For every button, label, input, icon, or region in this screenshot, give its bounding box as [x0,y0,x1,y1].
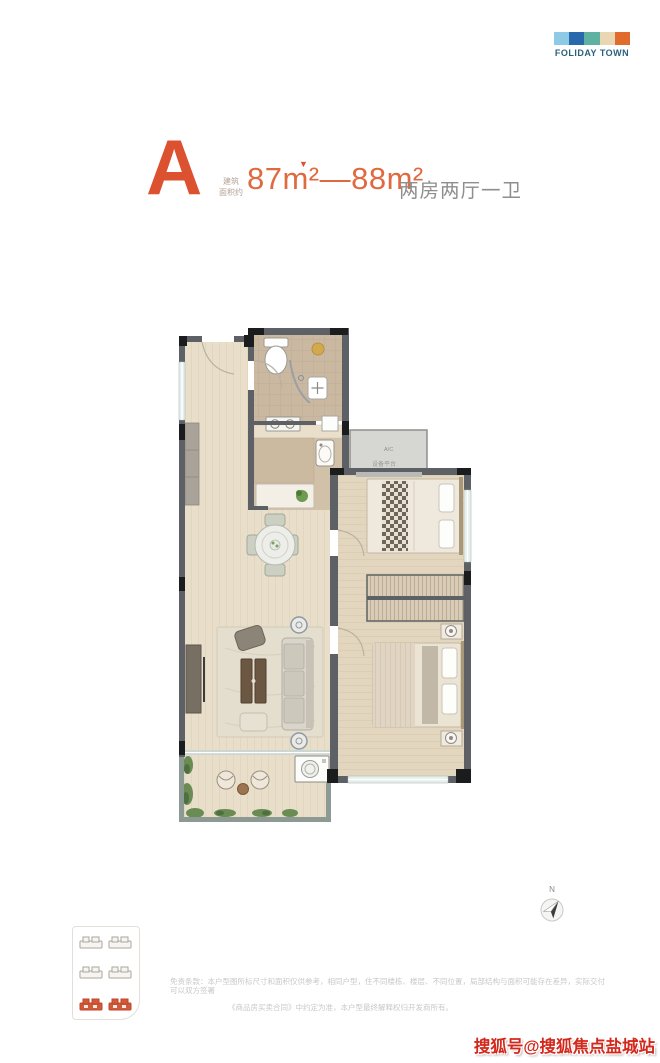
logo-text: FOLIDAY TOWN [552,48,632,58]
logo-color-block [569,32,584,45]
fridge-icon [322,416,338,431]
north-indicator: N [536,882,568,933]
toilet-icon [265,346,287,374]
pillow [439,484,454,512]
pillow [439,520,454,548]
unit-type-letter: A [146,128,202,206]
bed2-headboard [459,477,463,555]
logo-color-block [584,32,599,45]
balcony-table [238,784,249,795]
wardrobe [367,575,464,621]
floorplan-drawing: A/C 设备平台 [170,328,482,824]
coffee-table [241,659,252,703]
pouf [240,713,267,731]
logo-color-strip [554,32,630,45]
bed2-duvet [382,481,408,551]
dining-chair [265,514,285,526]
keyplan-drawing [73,927,139,1019]
platform-label: 设备平台 [372,460,396,468]
area-note: 建筑 面积约 [214,177,248,199]
logo-color-block [615,32,630,45]
bed-throw [422,646,438,724]
ac-label: A/C [384,447,393,453]
tv-cabinet-icon [186,645,201,713]
master-headboard [461,641,464,729]
brand-logo: FOLIDAY TOWN [552,32,632,58]
building-icon-highlighted [80,999,131,1010]
disclaimer: 免责条款：本户型图所标尺寸和面积仅供参考，相同户型，住不同楼栋、楼层、不同位置，… [170,977,612,1012]
floor-lamp-icon [291,733,307,749]
master-duvet [373,643,415,727]
area-note-line2: 面积约 [214,188,248,199]
north-label: N [549,885,555,894]
pillow [442,648,457,678]
bedroom2-furniture [367,477,463,555]
keyplan-card [72,926,140,1020]
area-value: 87m²—88m² [247,161,424,197]
compass-icon [537,895,568,926]
tv-icon [203,657,205,702]
disclaimer-line1: 免责条款：本户型图所标尺寸和面积仅供参考，相同户型，住不同楼栋、楼层、不同位置，… [170,977,605,995]
kitchen-cabinet [254,438,314,483]
dining-chair [265,564,285,576]
page: FOLIDAY TOWN A 建筑 面积约 ▼ 87m²—88m² 两房两厅一卫 [0,0,660,1063]
building-icon [80,937,131,978]
coffee-table [255,659,266,703]
watermark: 搜狐号@搜狐焦点盐城站 [474,1033,655,1057]
area-note-line1: 建筑 [214,177,248,188]
disclaimer-line2: 《商品房买卖合同》中约定为准，本户型最终解释权归开发商所有。 [228,1003,612,1012]
pillow [442,684,457,714]
floorplan: A/C 设备平台 [170,328,482,824]
logo-color-block [554,32,569,45]
layout-description: 两房两厅一卫 [399,174,522,203]
logo-color-block [600,32,615,45]
shoe-cabinet [185,423,199,505]
round-basin-icon [312,343,324,355]
floor-lamp-icon [291,617,307,633]
